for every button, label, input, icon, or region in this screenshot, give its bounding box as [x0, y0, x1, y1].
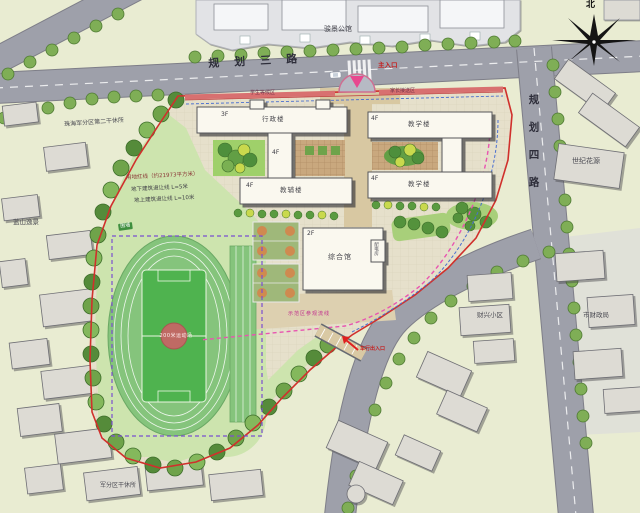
east-road-label: 规划四路	[528, 94, 539, 204]
admin-name: 行政楼	[262, 116, 285, 123]
site-plan-graphic	[0, 0, 640, 513]
southeast-gov-label: 市财政局	[583, 312, 609, 319]
teach-a-floors: 4F	[371, 116, 378, 122]
gym-floors: 2F	[307, 231, 314, 237]
admin-floors: 3F	[221, 112, 228, 118]
west-residence-label: 蓝山逸景	[13, 219, 39, 226]
waiting-zone-left-label: 学生等候区	[250, 91, 275, 96]
link-corridor	[442, 138, 462, 172]
southeast-residence-label: 财兴小区	[477, 312, 503, 319]
sprint-lanes	[230, 246, 256, 422]
vehicle-entrance-label: 车行出入口	[360, 347, 385, 352]
power-room-label: 配电房	[373, 242, 378, 256]
courtyard-west	[295, 140, 345, 176]
main-entrance-label: 主入口	[378, 62, 398, 69]
north-label: 北	[586, 1, 595, 10]
gym-name: 综合馆	[328, 254, 352, 261]
aux-floors: 4F	[246, 183, 253, 189]
southwest-residence-label: 军分区干休所	[100, 483, 136, 489]
aux-name: 教辅楼	[280, 187, 303, 194]
track-label: 200米运动场	[149, 334, 203, 339]
waiting-zone-right-label: 家长接送区	[390, 89, 415, 94]
link-floors: 4F	[272, 150, 279, 156]
teach-b-name: 教学楼	[408, 181, 431, 188]
north-complex-label: 骏景公馆	[324, 26, 352, 33]
teach-b-floors: 4F	[371, 176, 378, 182]
visit-route-label: 示范区参观流线	[288, 312, 330, 317]
car	[330, 72, 341, 79]
teach-a-name: 教学楼	[408, 121, 431, 128]
site-plan-canvas: 北 规划三路 规划四路 主入口 车行出入口 骏景公馆 世纪花源 珠海军分区第二干…	[0, 0, 640, 513]
northeast-complex-label: 世纪花源	[572, 158, 600, 165]
